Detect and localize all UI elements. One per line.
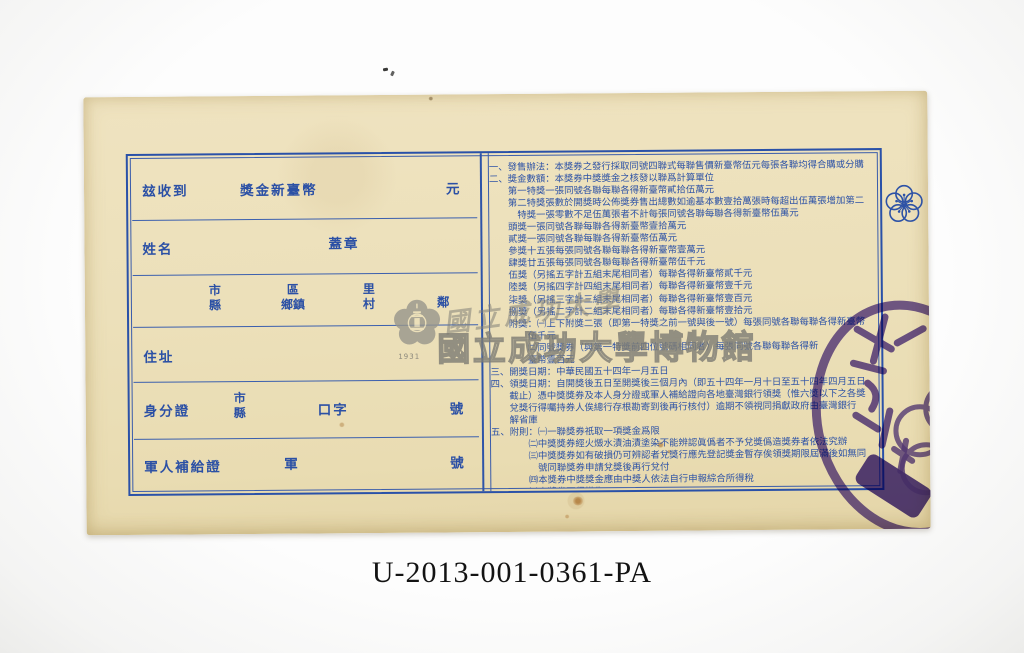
li-village-units: 里村 (363, 282, 375, 312)
paper-stain (572, 496, 583, 505)
receipt-form: 玆收到 獎金新臺幣 元 姓名 蓋章 市縣 區鄉鎮 里村 鄰 住址 身分證 市縣 … (128, 150, 880, 156)
purple-seal-stamp-icon (797, 290, 931, 535)
plum-blossom-icon (885, 183, 923, 229)
museum-watermark: 國立成功大學博物館 (437, 320, 757, 371)
amount-prefix-label: 獎金新臺幣 (240, 178, 318, 199)
paper-stain (565, 515, 570, 519)
received-label: 玆收到 (142, 179, 189, 199)
military-word-label: 軍 (284, 453, 300, 473)
lottery-ticket-back: 玆收到 獎金新臺幣 元 姓名 蓋章 市縣 區鄉鎮 里村 鄰 住址 身分證 市縣 … (83, 91, 930, 536)
id-word-label: 口字 (318, 398, 349, 418)
id-number-suffix: 號 (450, 397, 466, 417)
row-divider (133, 272, 478, 276)
row-divider (132, 217, 477, 221)
district-township-units: 區鄉鎮 (281, 283, 305, 313)
background-speck (383, 68, 388, 72)
id-card-label: 身分證 (144, 399, 191, 419)
amount-unit-label: 元 (446, 177, 462, 197)
seal-year: 1931 (398, 353, 420, 361)
row-divider (134, 379, 479, 383)
background-speck (390, 71, 395, 77)
id-city-county-units: 市縣 (234, 391, 246, 421)
row-divider (134, 436, 479, 440)
address-label: 住址 (143, 346, 174, 366)
paper-stain (428, 97, 433, 101)
city-county-units: 市縣 (209, 283, 221, 313)
military-number-suffix: 號 (450, 451, 466, 471)
catalog-number: U-2013-001-0361-PA (0, 556, 1024, 590)
seal-label: 蓋章 (328, 232, 359, 252)
name-label: 姓名 (142, 238, 173, 258)
military-certificate-label: 軍人補給證 (144, 455, 222, 476)
